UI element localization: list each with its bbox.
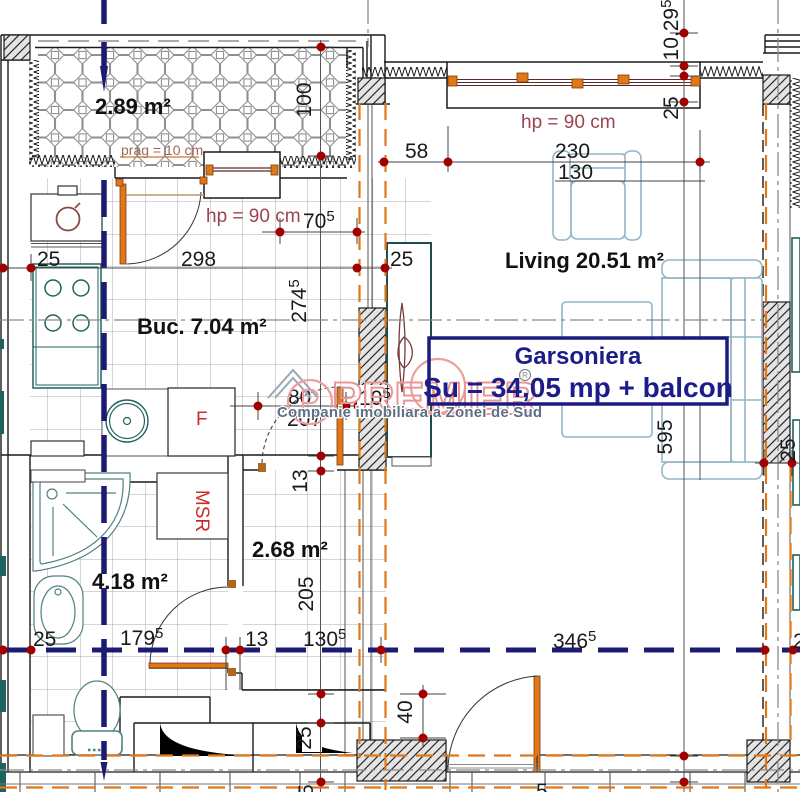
svg-text:595: 595 [654,419,677,454]
svg-text:hp = 90 cm: hp = 90 cm [521,112,616,133]
svg-text:10,295: 10,295 [658,0,683,60]
svg-text:25: 25 [293,726,316,749]
svg-text:R: R [522,371,528,380]
svg-text:2.68 m²: 2.68 m² [252,537,328,562]
svg-text:298: 298 [181,248,216,271]
svg-text:13: 13 [289,469,312,492]
svg-text:25: 25 [390,248,413,271]
svg-text:25: 25 [793,630,800,653]
svg-text:Living 20.51 m²: Living 20.51 m² [505,248,664,273]
svg-text:25: 25 [33,628,56,651]
svg-text:MSR: MSR [191,490,212,532]
svg-text:5: 5 [536,780,548,792]
svg-text:4.18 m²: 4.18 m² [92,569,168,594]
svg-text:205: 205 [295,576,318,611]
svg-text:230: 230 [555,140,590,163]
svg-text:58: 58 [405,140,428,163]
svg-text:25: 25 [295,784,318,792]
svg-text:25: 25 [37,248,60,271]
svg-text:Su = 34,05 mp + balcon: Su = 34,05 mp + balcon [423,372,733,403]
svg-text:F: F [196,409,208,430]
svg-text:40: 40 [394,700,417,723]
svg-text:hp = 90 cm: hp = 90 cm [206,206,301,227]
svg-text:100: 100 [293,82,316,117]
svg-text:13: 13 [245,628,268,651]
svg-text:25: 25 [777,438,800,461]
svg-text:130: 130 [558,161,593,184]
svg-text:Buc. 7.04 m²: Buc. 7.04 m² [137,314,267,339]
svg-text:Garsoniera: Garsoniera [515,343,642,370]
svg-text:prag = 10 cm: prag = 10 cm [121,142,203,158]
svg-text:Companie imobiliara a Zonei de: Companie imobiliara a Zonei de Sud [277,404,542,421]
svg-text:2.89 m²: 2.89 m² [95,94,171,119]
svg-text:25: 25 [660,96,683,119]
